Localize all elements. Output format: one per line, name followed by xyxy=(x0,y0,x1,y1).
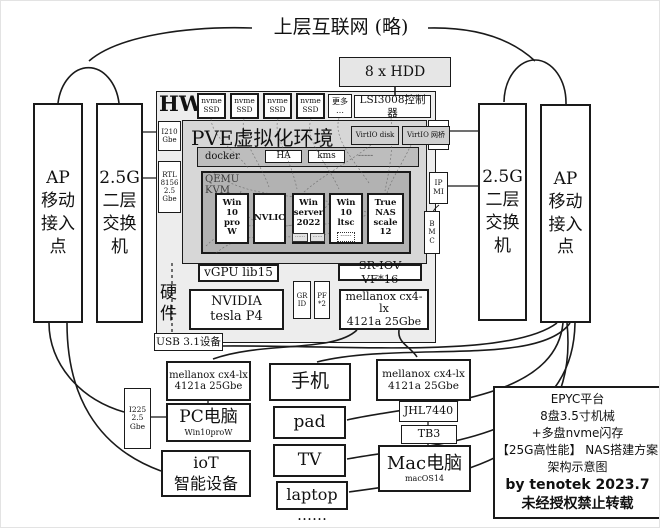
docker-more-label: ----- xyxy=(358,151,373,161)
bmc-box: B M C xyxy=(424,211,440,254)
mellanox-pc-box: mellanox cx4-lx 4121a 25Gbe xyxy=(166,361,251,401)
ipmi-box: IP MI xyxy=(429,172,448,204)
legend-line: 【25G高性能】 NAS搭建方案 xyxy=(495,442,660,459)
nvme-ssd-box: nvme SSD xyxy=(263,93,292,119)
ap-left-box: AP 移动 接入 点 xyxy=(33,103,83,323)
wire-path xyxy=(89,28,252,61)
virtio-net-box: VirtIO 网桥 xyxy=(402,126,450,145)
nvme-ssd-box: nvme SSD xyxy=(230,93,259,119)
more-ssd-box: 更多 … xyxy=(328,94,352,118)
legend-line: 架构示意图 xyxy=(495,459,660,476)
docker-label: docker xyxy=(205,151,240,162)
i225-box: I225 2.5 Gbe xyxy=(124,388,151,449)
wire-path xyxy=(49,323,124,412)
vgpu-box: vGPU lib15 xyxy=(198,264,279,282)
pc-label: PC电脑 xyxy=(179,408,237,428)
nvidia-tesla-box: NVIDIA tesla P4 xyxy=(189,289,284,330)
pve-title: PVE虚拟化环境 xyxy=(191,122,334,151)
i210-left-box: I210 Gbe xyxy=(158,121,181,151)
vm-winserver-sub-box: ⋯⋯ xyxy=(310,233,326,242)
legend-box: EPYC平台 8盘3.5寸机械 +多盘nvme闪存 【25G高性能】 NAS搭建… xyxy=(493,386,660,519)
legend-line: +多盘nvme闪存 xyxy=(495,425,660,442)
pc-box: PC电脑 Win10proW xyxy=(166,403,251,442)
switch-right-box: 2.5G 二层 交换 机 xyxy=(478,103,527,321)
nvme-ssd-box: nvme SSD xyxy=(296,93,325,119)
tb3-box: TB3 xyxy=(401,425,457,444)
jhl7440-box: JHL7440 xyxy=(399,401,458,422)
nvme-ssd-box: nvme SSD xyxy=(197,93,226,119)
vm-truenas: True NAS scale 12 xyxy=(367,193,404,244)
lsi-controller-box: LSI3008控制器 xyxy=(354,95,431,118)
nas-architecture-diagram: docker HA kms ----- 上层互联网 ( xyxy=(0,0,660,528)
wire-path xyxy=(58,68,119,103)
legend-line: EPYC平台 xyxy=(495,391,660,408)
vm-winserver-sub: ⋯⋯ ⋯⋯ xyxy=(292,233,325,525)
vm-ltsc-sub: ······ xyxy=(329,232,363,525)
kms-box: kms xyxy=(308,150,345,163)
internet-label: 上层互联网 (略) xyxy=(251,12,431,39)
legend-notice: 未经授权禁止转载 xyxy=(495,495,660,514)
hdd-box: 8 x HDD xyxy=(339,57,451,87)
mac-os-label: macOS14 xyxy=(405,474,444,483)
legend-line: 8盘3.5寸机械 xyxy=(495,408,660,425)
rtl8156-box: RTL 8156 2.5 Gbe xyxy=(158,161,181,213)
pc-os-label: Win10proW xyxy=(185,428,233,437)
wire-path xyxy=(504,60,566,104)
switch-left-box: 2.5G 二层 交换 机 xyxy=(96,103,143,323)
mellanox-mac-box: mellanox cx4-lx 4121a 25Gbe xyxy=(376,359,471,401)
ha-box: HA xyxy=(265,150,302,163)
usb-device-box: USB 3.1设备 xyxy=(154,333,223,351)
vm-winserver-sub-box: ⋯⋯ xyxy=(292,233,308,242)
vm-nvlic: NVLIC xyxy=(253,193,286,244)
vm-win10pro: Win 10 pro W xyxy=(215,193,249,244)
ap-right-box: AP 移动 接入 点 xyxy=(540,104,591,323)
virtio-disk-box: VirtIO disk xyxy=(351,126,399,145)
legend-byline: by tenotek 2023.7 xyxy=(495,476,660,495)
mac-label: Mac电脑 xyxy=(387,454,462,475)
vm-ltsc-sub-box: ······ xyxy=(337,232,354,242)
mac-box: Mac电脑 macOS14 xyxy=(378,445,471,492)
hardware-label: 硬 件 xyxy=(160,283,177,326)
iot-box: ioT 智能设备 xyxy=(161,450,251,497)
hw-label: HW xyxy=(159,91,202,116)
